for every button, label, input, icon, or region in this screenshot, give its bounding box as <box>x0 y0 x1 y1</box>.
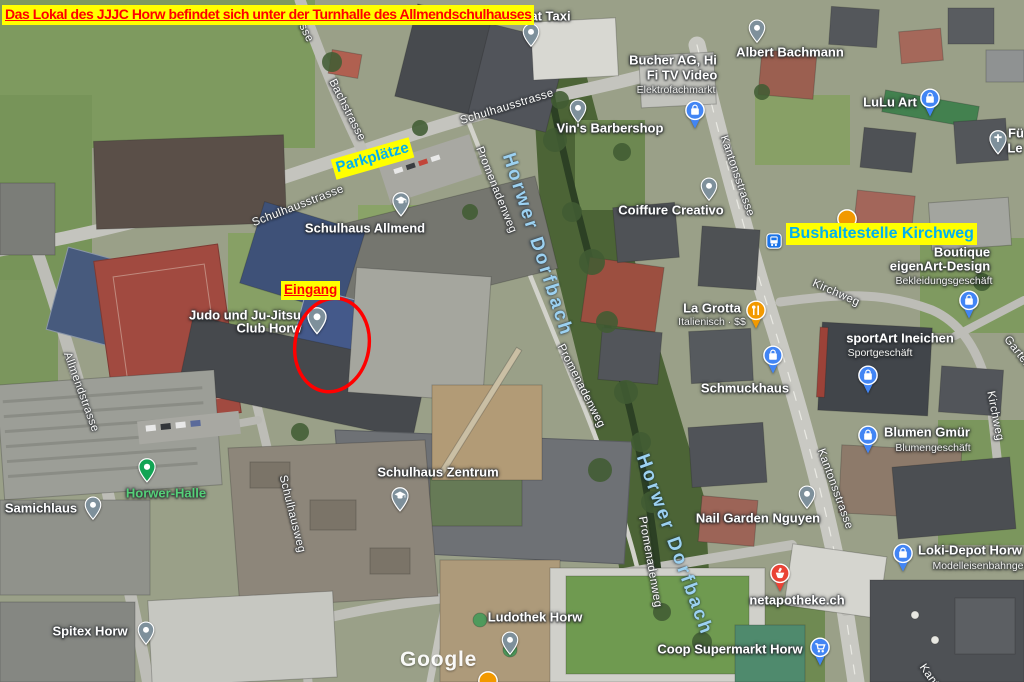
place-label-albert-bachmann[interactable]: Albert Bachmann <box>736 45 844 60</box>
shopping-pin-bucher[interactable] <box>684 100 706 131</box>
school-pin-allmend[interactable] <box>392 192 410 217</box>
place-label-loki-depot[interactable]: Loki-Depot Horw <box>918 543 1022 558</box>
place-label-ludothek[interactable]: Ludothek Horw <box>488 610 583 625</box>
place-pin-ludothek[interactable] <box>502 631 519 655</box>
bus-stop-icon[interactable] <box>766 233 782 249</box>
shopping-pin-boutique[interactable] <box>958 290 980 321</box>
place-pin-coiffure-creativo[interactable] <box>701 177 718 201</box>
supermarket-pin-coop[interactable] <box>809 637 831 668</box>
annotation-bushaltestelle: Bushaltestelle Kirchweg <box>786 223 977 245</box>
shopping-pin-loki-depot[interactable] <box>892 543 914 574</box>
annotation-eingang: Eingang <box>281 281 340 300</box>
restaurant-pin-bottom-edge[interactable] <box>477 670 499 682</box>
place-label-la-grotta[interactable]: La Grotta <box>683 301 741 316</box>
shopping-pin-schmuckhaus[interactable] <box>762 345 784 376</box>
place-pin-samichlaus[interactable] <box>85 496 102 520</box>
place-pin-albert-bachmann[interactable] <box>749 19 766 43</box>
place-label-boutique-subtitle: Bekleidungsgeschäft <box>896 275 993 287</box>
place-pin-taxi[interactable] <box>523 23 540 47</box>
saved-place-pin-horwer-halle[interactable] <box>138 458 156 483</box>
place-label-boutique-line1[interactable]: Boutique <box>934 245 990 260</box>
place-label-lulu-art[interactable]: LuLu Art <box>863 95 917 110</box>
place-label-spitex[interactable]: Spitex Horw <box>52 624 127 639</box>
place-label-vins-barbershop[interactable]: Vin's Barbershop <box>557 121 664 136</box>
place-label-church-line2[interactable]: Le <box>1007 141 1022 156</box>
place-pin-nail-garden[interactable] <box>799 485 816 509</box>
church-pin[interactable] <box>989 130 1007 155</box>
pharmacy-pin-netapotheke[interactable] <box>769 563 791 594</box>
place-label-coop[interactable]: Coop Supermarkt Horw <box>657 642 802 657</box>
shopping-pin-blumen[interactable] <box>857 425 879 456</box>
place-label-boutique-line2[interactable]: eigenArt-Design <box>890 259 990 274</box>
shopping-pin-lulu-art[interactable] <box>919 88 941 119</box>
place-label-church-line1[interactable]: Fü <box>1008 126 1024 141</box>
place-label-nail-garden[interactable]: Nail Garden Nguyen <box>696 511 820 526</box>
place-label-blumen-gmur[interactable]: Blumen Gmür <box>884 425 970 440</box>
entrance-ellipse-marker <box>288 293 378 398</box>
place-label-bucher-line1[interactable]: Bucher AG, Hi <box>629 53 717 68</box>
place-label-horwer-halle[interactable]: Horwer-Halle <box>126 486 206 501</box>
map-screenshot: sse Bachstrasse Schulhausstrasse Schulha… <box>0 0 1024 682</box>
google-logo[interactable]: Google <box>400 648 477 672</box>
shopping-pin-sportart[interactable] <box>857 365 879 396</box>
place-label-blumen-subtitle: Blumengeschäft <box>895 442 970 454</box>
place-label-netapotheke[interactable]: netapotheke.ch <box>749 593 844 608</box>
place-label-la-grotta-subtitle: Italienisch · $$ <box>678 316 746 328</box>
restaurant-pin-la-grotta[interactable] <box>745 300 767 331</box>
place-label-bucher-subtitle: Elektrofachmarkt <box>637 84 716 96</box>
school-pin-zentrum[interactable] <box>391 487 409 512</box>
place-label-schulhaus-allmend[interactable]: Schulhaus Allmend <box>305 221 425 236</box>
place-label-bucher-line2[interactable]: Fi TV Video <box>647 68 718 83</box>
place-label-coiffure-creativo[interactable]: Coiffure Creativo <box>618 203 723 218</box>
annotation-banner: Das Lokal des JJJC Horw befindet sich un… <box>2 5 534 25</box>
place-label-sportart-subtitle: Sportgeschäft <box>848 347 913 359</box>
place-label-sportart[interactable]: sportArt Ineichen <box>846 331 954 346</box>
place-label-schulhaus-zentrum[interactable]: Schulhaus Zentrum <box>377 465 498 480</box>
place-pin-spitex[interactable] <box>138 621 155 645</box>
place-label-samichlaus[interactable]: Samichlaus <box>5 501 77 516</box>
place-label-loki-subtitle: Modelleisenbahngeschäft <box>932 560 1024 572</box>
place-label-schmuckhaus[interactable]: Schmuckhaus <box>701 381 789 396</box>
